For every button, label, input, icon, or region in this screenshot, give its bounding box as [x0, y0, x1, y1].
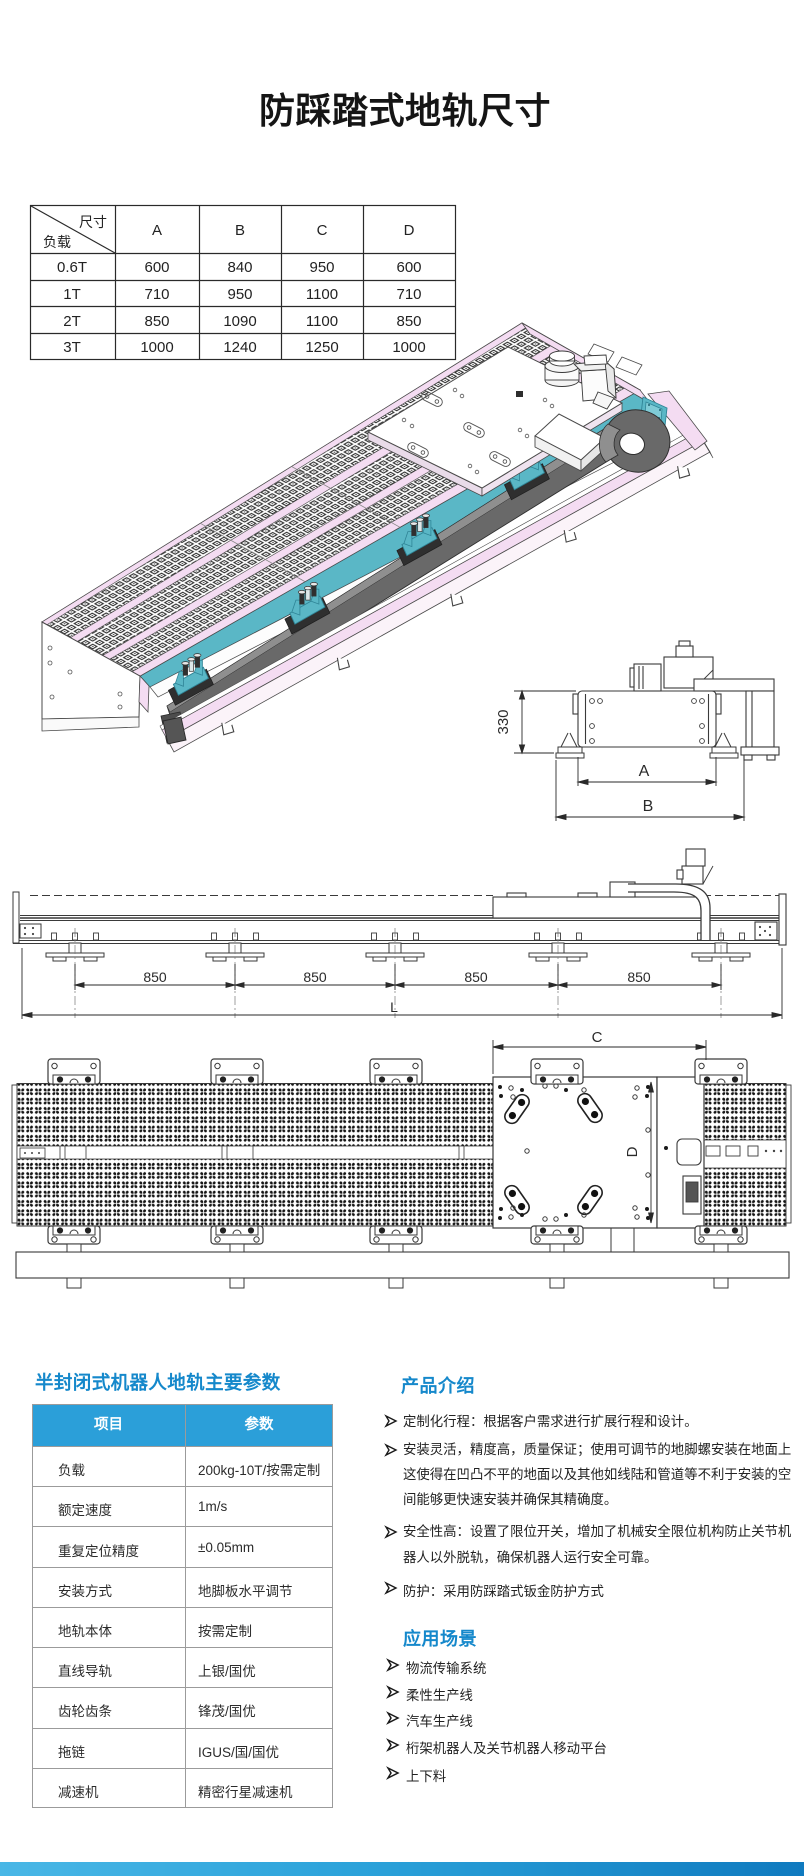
- svg-text:C: C: [592, 1029, 603, 1046]
- svg-text:D: D: [624, 1146, 641, 1157]
